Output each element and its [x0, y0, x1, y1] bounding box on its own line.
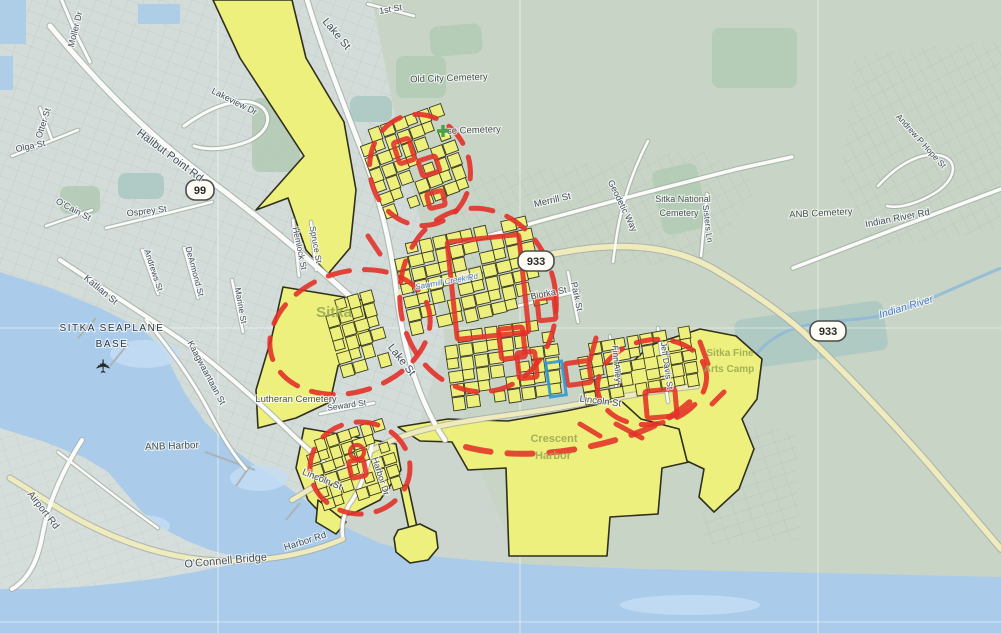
route-shield-933: 933 — [810, 321, 846, 341]
water-pond — [138, 4, 180, 24]
map-label: SITKA SEAPLANE — [60, 323, 165, 334]
map-label: Harbor — [535, 450, 572, 462]
parcel — [445, 345, 459, 360]
parcel — [367, 315, 379, 327]
shallow-water — [620, 595, 760, 615]
parcel — [505, 298, 518, 310]
seaplane-base-airplane-icon: ✈ — [94, 358, 115, 374]
parcel — [493, 248, 506, 260]
parcel — [340, 363, 355, 378]
route-shield-number: 99 — [194, 185, 206, 197]
parcel — [521, 386, 536, 400]
map-label: BASE — [96, 339, 129, 350]
water-pond — [0, 56, 13, 90]
route-shield-number: 933 — [819, 326, 837, 338]
parcel — [466, 394, 481, 408]
map-label: Sitka — [316, 304, 353, 321]
parcel — [631, 358, 646, 370]
parcel — [333, 339, 345, 351]
parcel — [422, 251, 435, 263]
parcel — [474, 354, 489, 368]
parcel — [486, 339, 498, 350]
parcel — [678, 326, 691, 340]
parcel — [482, 263, 497, 278]
parcel — [459, 343, 474, 357]
parcel — [449, 244, 464, 259]
parcel — [431, 289, 446, 304]
parcel — [411, 266, 426, 281]
map-label: Sitka National — [655, 194, 711, 204]
parcel — [464, 308, 479, 323]
map-canvas[interactable]: 99933933Lake St1st StMoller DrHalibut Po… — [0, 0, 1001, 633]
parcel — [449, 370, 464, 383]
parcel — [686, 373, 699, 387]
parcel — [508, 389, 522, 404]
parcel — [452, 396, 466, 411]
parcel — [349, 347, 361, 359]
parcel — [642, 345, 655, 359]
parcel — [342, 322, 357, 337]
parcel — [461, 356, 475, 371]
parcel — [360, 290, 375, 305]
water-pond — [0, 0, 26, 44]
map-label: Crescent — [530, 433, 577, 445]
parcel — [351, 306, 363, 318]
parcel — [462, 369, 474, 380]
park-area — [118, 173, 164, 199]
park-area — [350, 96, 392, 122]
map-label: Arts Camp — [704, 364, 755, 375]
parcel — [358, 331, 373, 346]
map-viewport: 99933933Lake St1st StMoller DrHalibut Po… — [0, 0, 1001, 633]
map-label: Cemetery — [659, 208, 699, 218]
map-label: se Cemetery — [447, 124, 501, 137]
map-label: ANB Harbor — [145, 440, 200, 453]
parcel — [684, 361, 698, 374]
parcel — [478, 380, 490, 391]
parcel — [646, 368, 661, 380]
route-shield-933: 933 — [518, 251, 554, 271]
parcel — [477, 304, 492, 319]
parcel — [406, 307, 421, 322]
shallow-water — [230, 465, 288, 491]
parcel — [461, 295, 476, 310]
parcel — [490, 365, 505, 379]
parcel — [499, 273, 514, 288]
route-shield-number: 933 — [527, 256, 545, 268]
parcel — [488, 289, 501, 301]
map-label: Lutheran Cemetery — [255, 394, 337, 405]
park-area — [712, 28, 797, 88]
parcel — [447, 358, 459, 369]
parcel — [473, 341, 488, 354]
parcel — [476, 367, 490, 382]
parcel — [409, 320, 424, 335]
parcel — [629, 347, 640, 358]
park-area — [429, 23, 483, 57]
parcel — [452, 257, 467, 272]
route-shield-99: 99 — [186, 180, 214, 200]
map-label: Sitka Fine — [706, 348, 754, 359]
